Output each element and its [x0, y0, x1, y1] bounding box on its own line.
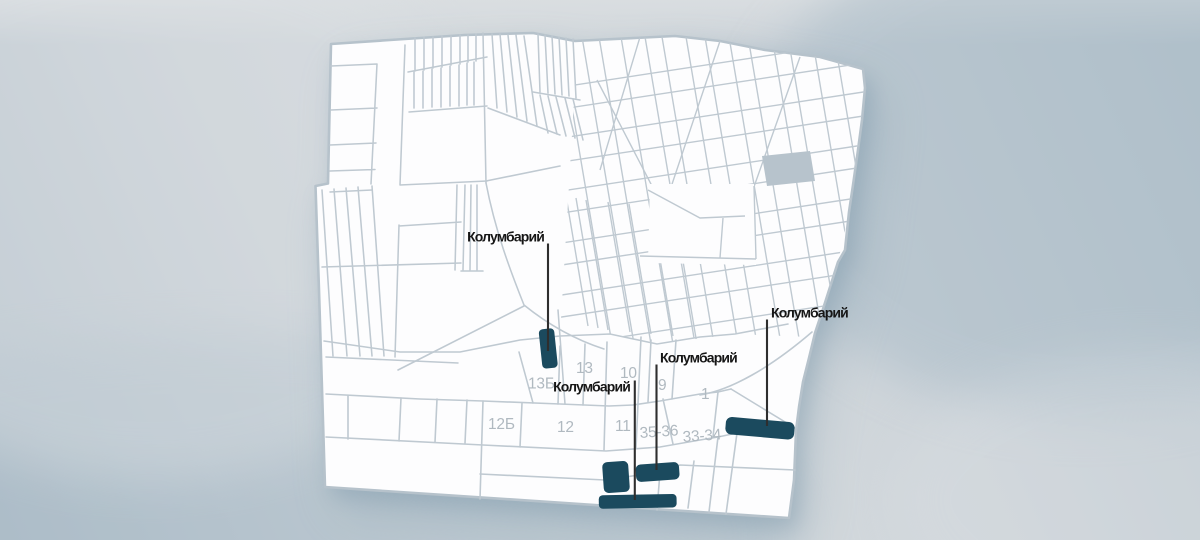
- svg-text:13Б: 13Б: [528, 376, 555, 393]
- svg-text:12Б: 12Б: [488, 416, 515, 433]
- svg-text:13: 13: [576, 360, 593, 377]
- svg-text:35-36: 35-36: [639, 422, 679, 442]
- svg-text:9: 9: [658, 377, 666, 394]
- svg-text:33-34: 33-34: [682, 426, 722, 446]
- svg-text:Колумбарий: Колумбарий: [467, 229, 544, 245]
- svg-text:Колумбарий: Колумбарий: [660, 350, 737, 366]
- svg-text:11: 11: [615, 418, 631, 435]
- svg-text:1: 1: [701, 386, 709, 403]
- svg-text:12: 12: [557, 419, 574, 436]
- svg-text:Колумбарий: Колумбарий: [553, 378, 630, 394]
- svg-text:Колумбарий: Колумбарий: [771, 305, 848, 321]
